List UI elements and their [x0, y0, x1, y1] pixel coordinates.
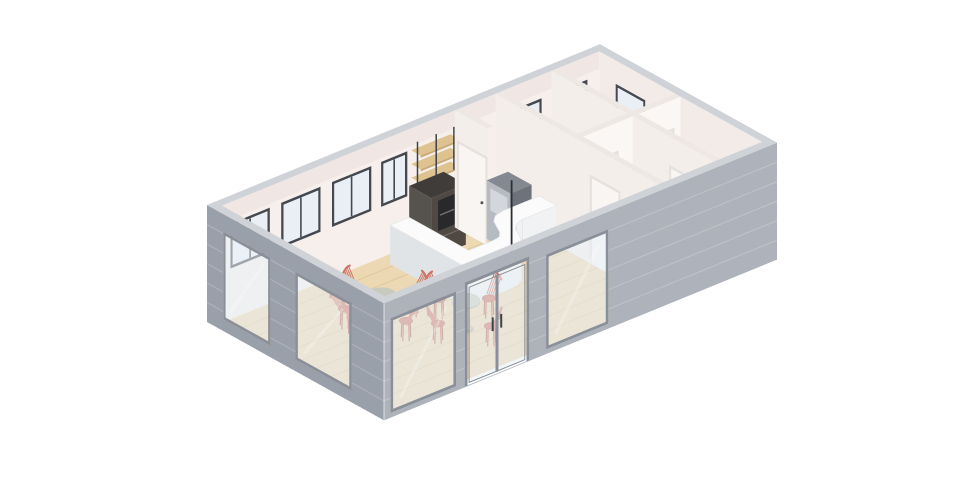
interior-door — [457, 140, 488, 246]
interior-door-panel — [459, 144, 486, 245]
isometric-cafe-render — [0, 0, 960, 482]
floorplan-canvas — [0, 0, 960, 482]
door-handle — [480, 201, 483, 204]
